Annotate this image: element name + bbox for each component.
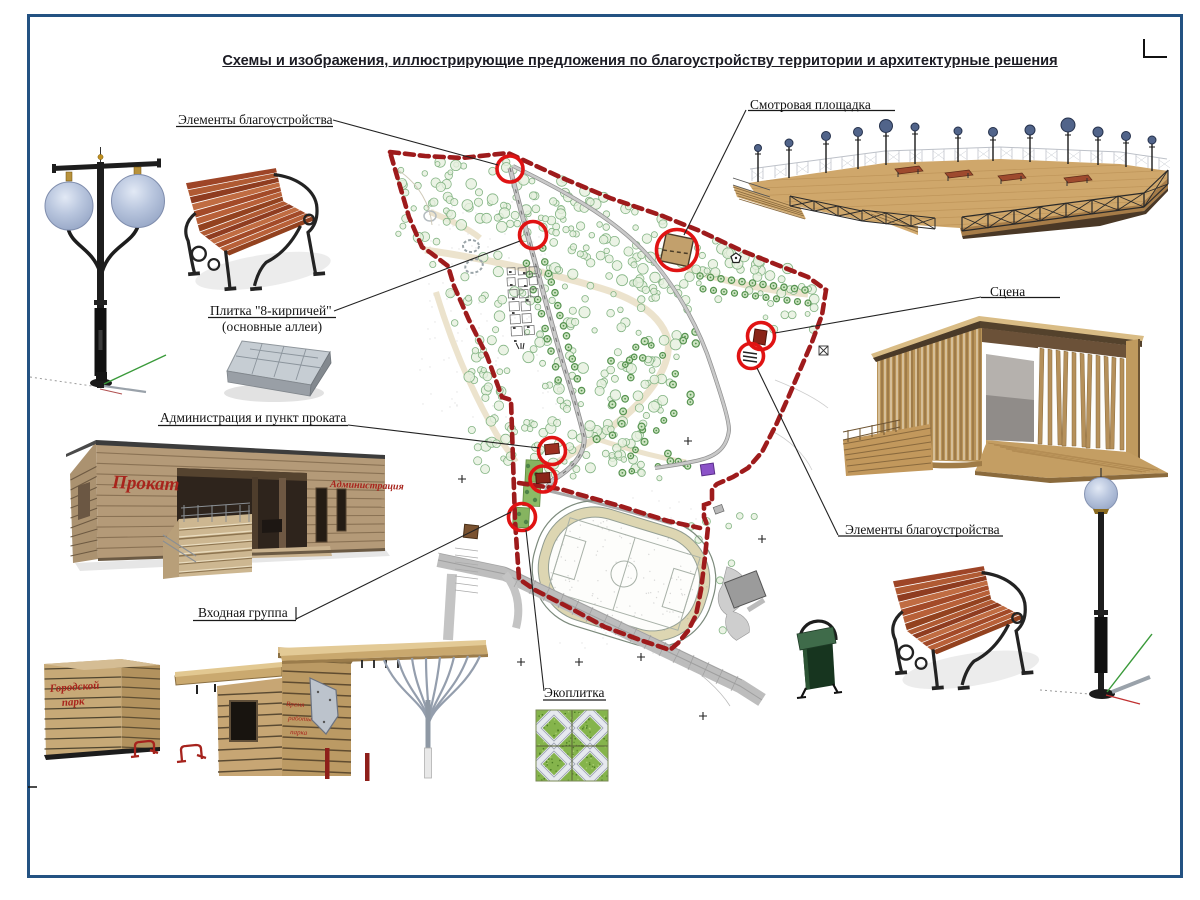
svg-text:Прокат: Прокат — [111, 472, 180, 495]
svg-text:работы: работы — [287, 714, 312, 723]
svg-text:Время: Время — [286, 700, 305, 709]
svg-text:парка: парка — [290, 728, 308, 737]
svg-text:парк: парк — [61, 695, 85, 709]
